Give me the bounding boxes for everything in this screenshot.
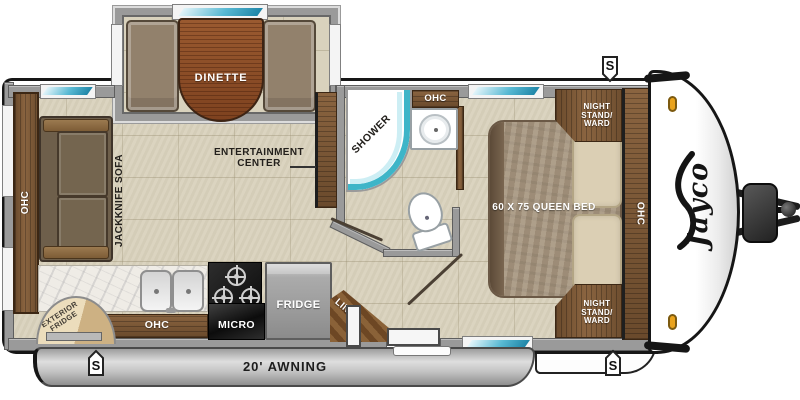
dinette-label: DINETTE <box>180 72 262 84</box>
entry-step <box>393 346 451 356</box>
bath-overhead-cabinet: OHC <box>412 90 459 108</box>
nightstand-rear-label: NIGHT STAND/ WARD <box>574 300 620 327</box>
window-glass <box>472 87 540 95</box>
nightstand-front-label: NIGHT STAND/ WARD <box>574 103 620 130</box>
sink-drain <box>186 289 191 294</box>
speaker-badge: S <box>604 349 622 377</box>
dinette-slide-window-right <box>329 24 341 86</box>
speaker-letter: S <box>92 358 101 373</box>
speaker-badge: S <box>87 349 105 377</box>
speaker-letter: S <box>609 358 618 373</box>
propane-tank-cover <box>742 183 778 243</box>
bath-sink-drain <box>434 128 438 132</box>
dinette-table: DINETTE <box>178 18 264 122</box>
rv-floorplan: DINETTE OHC JACKKNIFE SOFA ENTERTAINMENT… <box>0 0 800 400</box>
sink-bowl <box>140 270 172 312</box>
microwave-label: MICRO <box>218 320 255 332</box>
entertainment-center-cabinet <box>315 92 337 208</box>
label-leader-line <box>290 166 316 168</box>
stove-burner-icon <box>227 267 246 286</box>
awning: 20' AWNING <box>33 347 535 387</box>
pillow <box>572 214 622 290</box>
awning-label: 20' AWNING <box>243 360 327 375</box>
fridge-label: FRIDGE <box>277 299 321 311</box>
microwave: MICRO <box>208 303 265 340</box>
bed-label: 60 X 75 QUEEN BED <box>492 202 596 213</box>
entry-door <box>387 328 440 346</box>
front-left-window <box>40 84 96 99</box>
sink-drain <box>154 289 159 294</box>
entry-door-leaf <box>346 305 361 347</box>
kitchen-ohc-label: OHC <box>145 320 170 332</box>
sofa-label: JACKKNIFE SOFA <box>113 155 124 248</box>
kitchen-sink <box>138 266 206 314</box>
shower-partition-wall <box>336 85 345 223</box>
hitch-coupler-ball <box>781 202 796 217</box>
bedroom-window-top <box>468 84 544 99</box>
bath-sink-vanity <box>410 108 458 150</box>
bedroom-ohc-label: OHC <box>634 202 645 225</box>
fridge: FRIDGE <box>265 262 332 340</box>
dinette-bench-left <box>126 20 179 112</box>
rear-overhead-cabinet: OHC <box>13 92 39 314</box>
shower-label: SHOWER <box>350 113 393 156</box>
speaker-letter: S <box>606 58 615 73</box>
sofa-label-wrap: JACKKNIFE SOFA <box>97 145 141 257</box>
brand-logo-wrap: Jayco <box>664 158 734 250</box>
exterior-fridge-drawer <box>46 332 102 341</box>
dinette-bench-right <box>263 20 316 112</box>
bath-ohc-label: OHC <box>424 94 446 105</box>
marker-light <box>668 96 677 112</box>
window-glass <box>178 8 263 16</box>
pillow <box>572 132 622 208</box>
faucet-icon <box>166 308 176 313</box>
window-glass <box>43 87 94 95</box>
marker-light <box>668 314 677 330</box>
rear-ohc-label: OHC <box>20 191 31 214</box>
sink-bowl <box>172 270 204 312</box>
speaker-badge: S <box>601 55 619 83</box>
brand-logo: Jayco <box>684 161 715 246</box>
kitchen-overhead-cabinet: OHC <box>106 314 208 338</box>
dinette-slide-window-left <box>111 24 123 86</box>
